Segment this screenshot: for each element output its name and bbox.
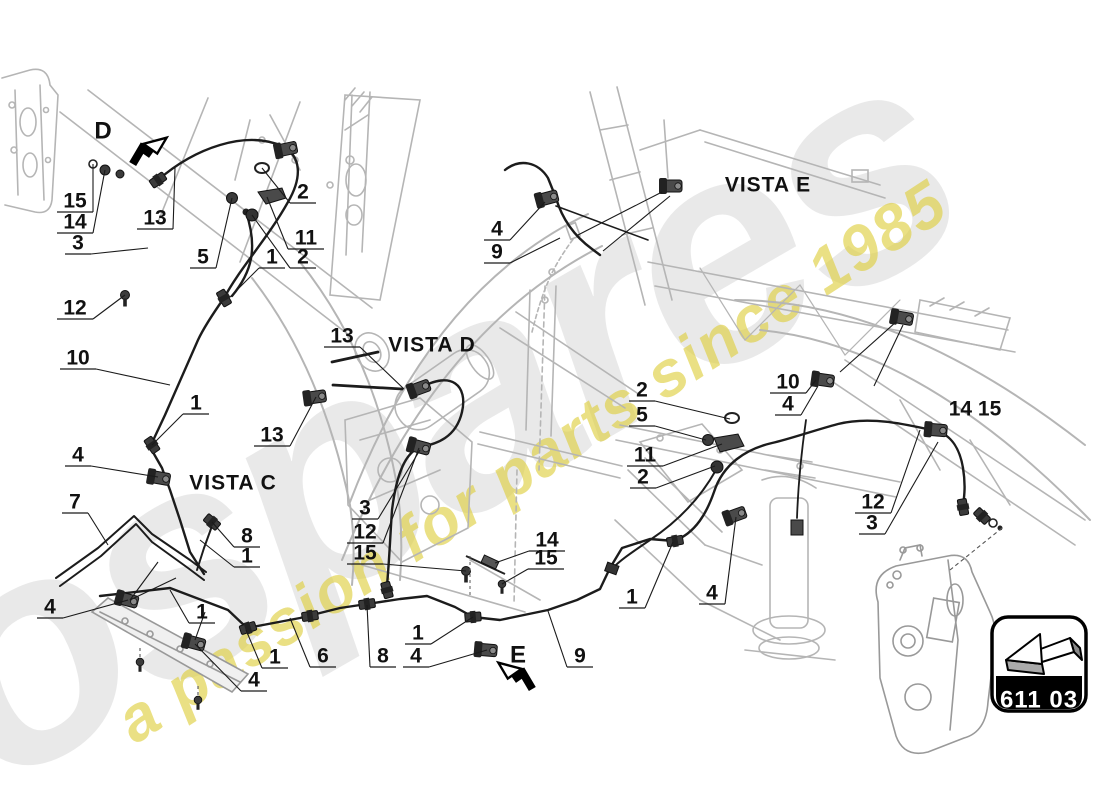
callout-label-4: 4 <box>410 645 422 668</box>
suspension-upright <box>345 88 372 255</box>
callout-label-10: 10 <box>776 371 799 394</box>
callout-label-3: 3 <box>72 232 84 255</box>
callout-label-15: 15 <box>534 547 558 570</box>
marker-e-label: E <box>510 642 526 669</box>
clamp-14-15 <box>923 421 947 439</box>
callout-label-11: 11 <box>634 444 657 467</box>
callout-label-12: 12 <box>353 521 376 544</box>
union-1-right <box>666 534 684 549</box>
callout-label-5: 5 <box>636 404 648 427</box>
callout-label-1: 1 <box>626 586 638 609</box>
vista-e-title: VISTA E <box>725 174 811 197</box>
fitting-small <box>116 170 124 178</box>
caliper-fragment-top-left <box>2 69 58 212</box>
callout-leader <box>93 170 105 233</box>
callout-label-9: 9 <box>491 241 503 264</box>
caliper-bottom-right <box>876 545 995 753</box>
callout-label-7: 7 <box>69 491 81 514</box>
callout-leader <box>548 611 567 667</box>
callout-leader <box>91 248 148 254</box>
clamp-4-right <box>721 504 748 527</box>
callout-label-2: 2 <box>636 379 648 402</box>
callout-label-4: 4 <box>706 582 718 605</box>
callout-label-13: 13 <box>330 325 353 348</box>
callout-label-1: 1 <box>241 545 253 568</box>
vista-c-title: VISTA C <box>189 472 277 495</box>
callout-label-4: 4 <box>44 596 56 619</box>
callout-label-2: 2 <box>297 246 309 269</box>
callout-label-2: 2 <box>297 181 309 204</box>
pipe-front-small <box>232 212 252 296</box>
callout-label-6: 6 <box>317 645 329 668</box>
callout-label-1: 1 <box>190 392 202 415</box>
washer-right <box>989 519 997 527</box>
direction-arrow-d-icon <box>129 138 170 164</box>
callout-label-1: 1 <box>412 622 424 645</box>
callout-label-1: 1 <box>269 646 281 669</box>
callout-leader <box>431 617 473 644</box>
callout-leader <box>216 198 232 268</box>
part-code-badge: 611 03 <box>992 617 1086 714</box>
pipe-end-fitting <box>215 288 233 308</box>
badge-code: 611 03 <box>1000 687 1078 714</box>
callout-label-12: 12 <box>861 491 884 514</box>
callout-label-14: 14 <box>63 211 87 234</box>
callout-label-9: 9 <box>574 645 586 668</box>
callout-leader <box>429 650 487 667</box>
callout-leader <box>93 295 125 319</box>
hose-end-fitting <box>956 498 971 516</box>
parts-diagram-canvas: eurospares a passion for parts since 198… <box>0 0 1100 800</box>
clamp-vista-e-frame <box>659 178 682 194</box>
callout-label-4: 4 <box>782 393 794 416</box>
callout-label-12: 12 <box>63 297 86 320</box>
callout-label-3: 3 <box>359 497 371 520</box>
parts-diagram-page: eurospares a passion for parts since 198… <box>0 0 1100 800</box>
callout-label-1: 1 <box>196 601 208 624</box>
callout-label-4: 4 <box>248 669 260 692</box>
direction-marker-e: E <box>495 642 536 689</box>
callout-label-15: 15 <box>353 542 377 565</box>
callout-label-14-15: 14 15 <box>949 398 1002 421</box>
callout-label-10: 10 <box>66 347 89 370</box>
callout-label-3: 3 <box>866 512 878 535</box>
callout-label-8: 8 <box>377 645 389 668</box>
callout-label-4: 4 <box>491 218 503 241</box>
marker-d-label: D <box>94 118 111 145</box>
callout-label-13: 13 <box>260 424 283 447</box>
callout-label-13: 13 <box>143 207 166 230</box>
callout-label-15: 15 <box>63 190 87 213</box>
callout-leader <box>725 517 736 604</box>
wire-connector <box>791 520 803 535</box>
callout-label-5: 5 <box>197 246 209 269</box>
bolt-12 <box>121 291 130 307</box>
vista-d-title: VISTA D <box>388 334 476 357</box>
callout-leader <box>891 430 920 513</box>
callout-label-2: 2 <box>637 466 649 489</box>
callout-label-4: 4 <box>72 444 84 467</box>
direction-arrow-e-icon <box>495 663 536 689</box>
